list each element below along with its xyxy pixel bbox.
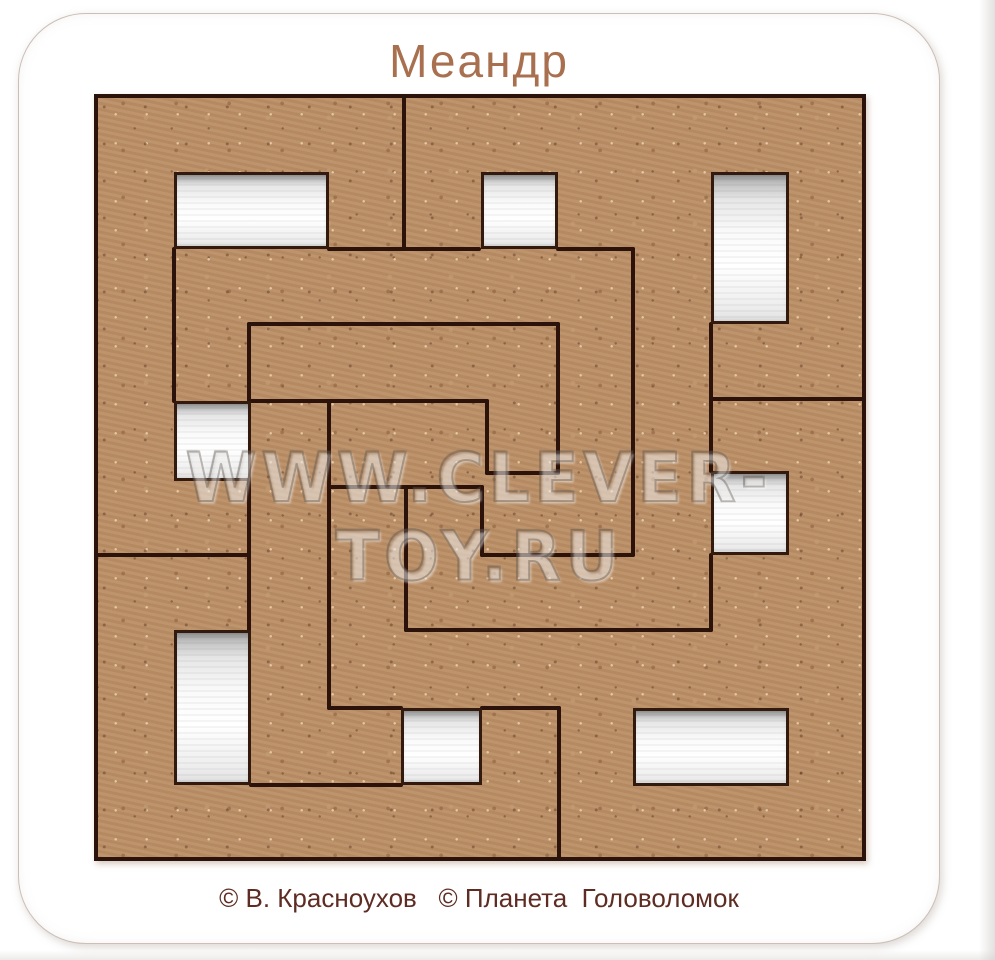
tray-hole-bottom-middle — [401, 708, 482, 785]
cut-line — [480, 553, 635, 557]
puzzle-board: Меандр WWW.CLEVER-TOY.RU © В. Красноухов… — [18, 13, 940, 944]
cut-line — [480, 485, 484, 557]
tray-hole-left-lower — [174, 630, 251, 785]
cut-line — [249, 399, 489, 403]
puzzle-pieces — [94, 94, 866, 861]
cut-line — [631, 247, 635, 557]
cut-line — [249, 783, 403, 787]
cut-line — [172, 247, 176, 403]
cut-line — [480, 706, 561, 710]
cut-line — [709, 553, 713, 632]
cut-line — [327, 247, 481, 251]
cut-line — [485, 471, 560, 475]
product-photo: Меандр WWW.CLEVER-TOY.RU © В. Красноухов… — [0, 0, 995, 960]
cut-line — [556, 247, 635, 251]
tray-hole-top-left — [174, 172, 329, 249]
cut-line — [327, 706, 403, 710]
cut-line — [247, 322, 560, 326]
cut-line — [404, 628, 713, 632]
cut-line — [94, 553, 251, 557]
cut-line — [402, 94, 406, 251]
tray-hole-top-right — [711, 172, 789, 324]
tray-hole-left-upper — [174, 401, 251, 481]
cut-line — [247, 322, 251, 403]
cut-line — [556, 322, 560, 475]
cut-line — [709, 397, 866, 401]
cut-line — [327, 399, 331, 710]
tray-hole-top-middle — [481, 172, 558, 249]
credits-text: © В. Красноухов © Планета Головоломок — [19, 883, 939, 914]
tray-hole-right-middle — [711, 471, 789, 555]
tray-hole-bottom-right — [633, 708, 789, 786]
puzzle-title: Меандр — [19, 34, 939, 88]
cut-line — [557, 706, 561, 861]
cut-line — [485, 399, 489, 475]
cut-line — [404, 485, 408, 632]
